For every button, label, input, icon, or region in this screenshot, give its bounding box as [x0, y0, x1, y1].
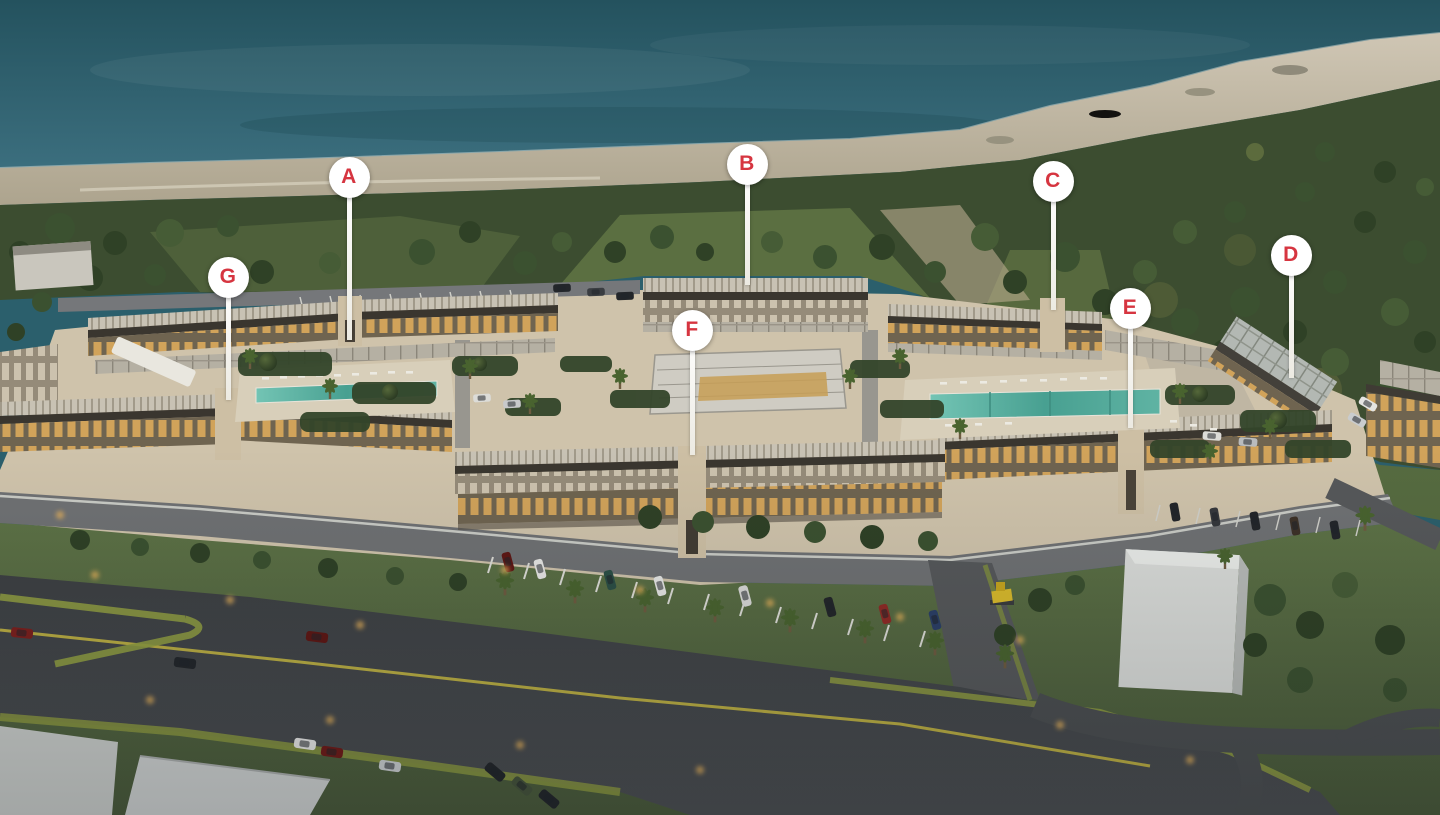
- marker-letter: C: [1045, 169, 1061, 193]
- building-marker-a[interactable]: A: [329, 157, 370, 198]
- aerial-masterplan: ABCDEFG: [0, 0, 1440, 815]
- building-marker-e[interactable]: E: [1110, 288, 1151, 329]
- building-marker-b[interactable]: B: [727, 144, 768, 185]
- building-marker-d[interactable]: D: [1271, 235, 1312, 276]
- marker-letter: B: [739, 152, 755, 176]
- building-marker-g[interactable]: G: [208, 257, 249, 298]
- marker-letter: G: [220, 265, 237, 289]
- building-marker-c[interactable]: C: [1033, 161, 1074, 202]
- markers-layer: ABCDEFG: [0, 0, 1440, 815]
- marker-letter: D: [1283, 243, 1299, 267]
- marker-letter: E: [1123, 296, 1138, 320]
- building-marker-a-stem: [347, 177, 352, 340]
- building-marker-f[interactable]: F: [672, 310, 713, 351]
- marker-letter: F: [685, 318, 698, 342]
- marker-letter: A: [341, 165, 357, 189]
